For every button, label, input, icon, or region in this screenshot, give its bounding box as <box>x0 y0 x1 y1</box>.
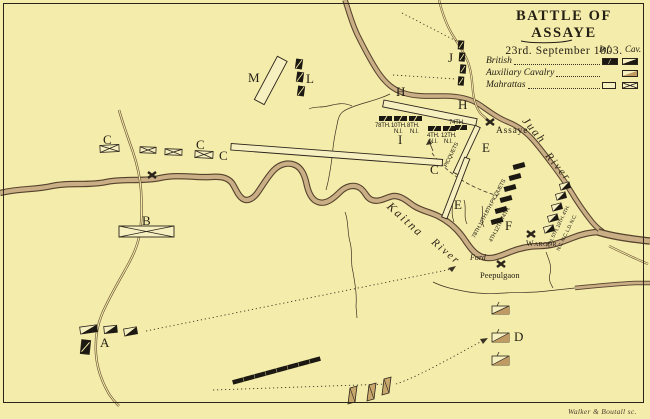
dotted-route-to-d <box>396 340 484 384</box>
cav-col-4 <box>555 192 566 200</box>
unit-label-h2: H <box>458 98 467 111</box>
legend-leader-dots <box>556 70 600 77</box>
british-infantry-symbol <box>602 58 618 65</box>
arrowhead-d <box>480 338 488 344</box>
f-block-6 <box>513 162 526 170</box>
brit-cav-a4 <box>80 340 90 355</box>
unit-label-b: B <box>142 214 151 227</box>
unit-label-c2: C <box>196 138 205 151</box>
legend-row-mahrattas: Mahrattas <box>486 80 642 90</box>
waroor-marker <box>527 231 535 237</box>
legend-header-infantry: Inf. <box>599 44 611 54</box>
place-ford: Ford <box>470 254 486 262</box>
mahratta-cav-c2 <box>140 147 156 154</box>
stream-peepulgaon <box>433 282 575 294</box>
unit-label-e1: E <box>482 141 490 154</box>
place-peepulgaon: Peepulgaon <box>480 271 520 280</box>
brit-cav-a1 <box>80 325 98 334</box>
legend-label-mahrattas: Mahrattas <box>486 80 526 90</box>
aux-bottom-2 <box>367 383 376 401</box>
place-waroor: Waroor <box>526 240 557 248</box>
british-cavalry-symbol <box>622 58 638 65</box>
legend-row-auxiliary: Auxiliary Cavalry <box>486 68 642 78</box>
cavalry-blocks-j <box>458 40 467 85</box>
stream-bank-2 <box>464 200 467 224</box>
map-title-block: BATTLE OF ASSAYE 23rd. September 1803. <box>487 8 641 57</box>
marching-column <box>232 356 321 384</box>
battle-map: BATTLE OF ASSAYE 23rd. September 1803. I… <box>0 0 650 419</box>
legend-leader-dots <box>514 58 600 65</box>
mahratta-infantry-symbol <box>602 82 616 89</box>
dotted-route-a-to-ford <box>146 269 452 331</box>
auxiliary-cavalry-d <box>492 302 509 365</box>
stream-north-branch <box>309 104 352 109</box>
aux-cav-d2 <box>492 329 509 342</box>
unit-label-c4: C <box>430 163 439 176</box>
aux-cav-d3 <box>492 352 509 365</box>
engraver-credit: Walker & Boutall sc. <box>568 407 637 416</box>
auxiliary-blocks-bottom <box>348 377 391 404</box>
unit-label-a: A <box>100 336 109 349</box>
cav-col-3 <box>551 203 562 211</box>
stream-waroor <box>546 252 553 288</box>
legend-leader-dots <box>528 82 600 89</box>
mahratta-cav-c3 <box>165 149 182 156</box>
regiment-74th: 74TH. <box>449 120 464 126</box>
unit-label-e2: E <box>454 198 462 211</box>
regiment-4th-ni: N.I. <box>429 139 438 145</box>
dotted-route-bottom <box>213 384 388 390</box>
legend-row-british: British <box>486 56 642 66</box>
map-title: BATTLE OF ASSAYE <box>487 8 641 42</box>
f-block-5 <box>509 173 522 181</box>
aux-bottom-1 <box>348 386 357 404</box>
stream-north <box>326 94 390 190</box>
aux-bottom-3 <box>382 377 391 395</box>
auxiliary-cavalry-symbol <box>622 70 638 77</box>
peepulgaon-marker <box>497 261 505 267</box>
unit-label-f: F <box>505 219 512 232</box>
unit-label-c1: C <box>103 133 112 146</box>
unit-label-c3: C <box>219 149 228 162</box>
assaye-marker <box>486 119 494 125</box>
regiment-12th-ni: N.I. <box>444 139 453 145</box>
regiment-78th: 78TH. <box>375 123 390 129</box>
line-c-mahratta <box>231 144 443 166</box>
dotted-route-j-lower <box>393 75 456 79</box>
legend-label-auxiliary: Auxiliary Cavalry <box>486 68 554 78</box>
mahratta-cavalry-symbol <box>622 82 638 89</box>
unit-label-d: D <box>514 330 523 343</box>
unit-label-l: L <box>306 72 314 85</box>
legend-header-cavalry: Cav. <box>625 44 641 54</box>
legend-label-british: British <box>486 56 512 66</box>
brit-cav-a3 <box>124 327 138 336</box>
aux-cav-d1 <box>492 302 509 314</box>
road-west <box>96 110 142 406</box>
regiment-8th-ni: N.I. <box>410 129 419 135</box>
brit-cav-a2 <box>104 325 118 333</box>
unit-label-h1: H <box>396 85 405 98</box>
stream-south <box>345 212 357 318</box>
unit-label-m: M <box>248 71 260 84</box>
dotted-route-j-upper <box>402 13 460 43</box>
f-block-3 <box>500 195 513 203</box>
mahratta-cavalry-units <box>100 144 213 237</box>
cavalry-blocks-l <box>295 59 305 97</box>
regiment-10th-ni: N.I. <box>394 129 403 135</box>
unit-label-j: J <box>448 51 453 64</box>
